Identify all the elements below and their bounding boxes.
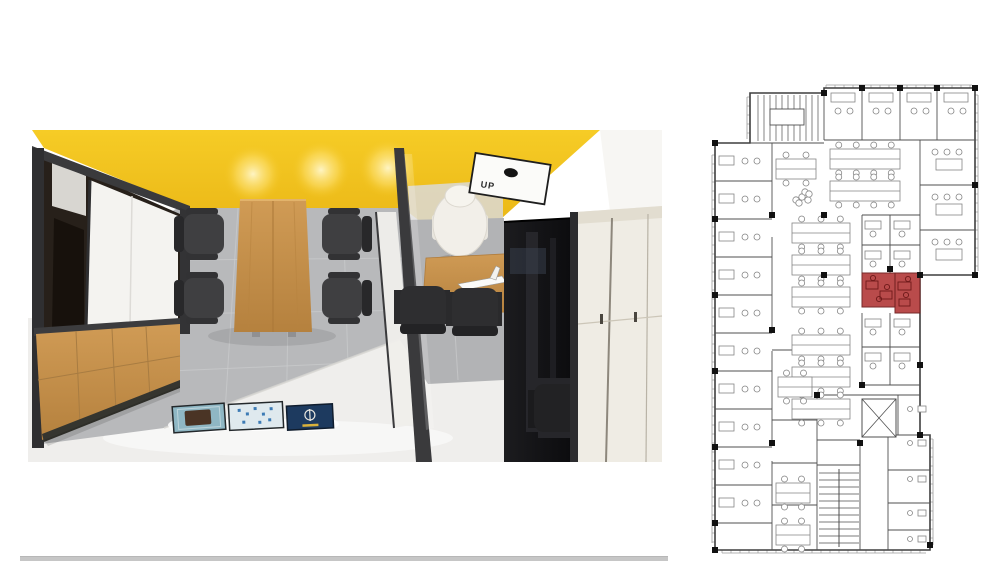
guest-chair-2	[446, 288, 502, 336]
closet	[570, 206, 662, 462]
presentation-canvas: UP	[0, 0, 1000, 562]
poster-2	[228, 402, 283, 431]
floor-shadow-strip	[20, 556, 668, 561]
guest-chair-1	[394, 286, 450, 334]
closet-handle-1	[600, 314, 603, 324]
closet-handle-2	[634, 312, 637, 322]
ceiling-lights	[223, 138, 418, 204]
room-render: UP	[28, 128, 662, 462]
floor-plan	[712, 85, 997, 555]
highlighted-room	[862, 273, 920, 313]
doorway	[52, 218, 84, 330]
poster-3	[286, 404, 333, 430]
meeting-table	[234, 200, 312, 337]
floor-posters	[168, 402, 339, 433]
poster-1	[172, 403, 226, 433]
